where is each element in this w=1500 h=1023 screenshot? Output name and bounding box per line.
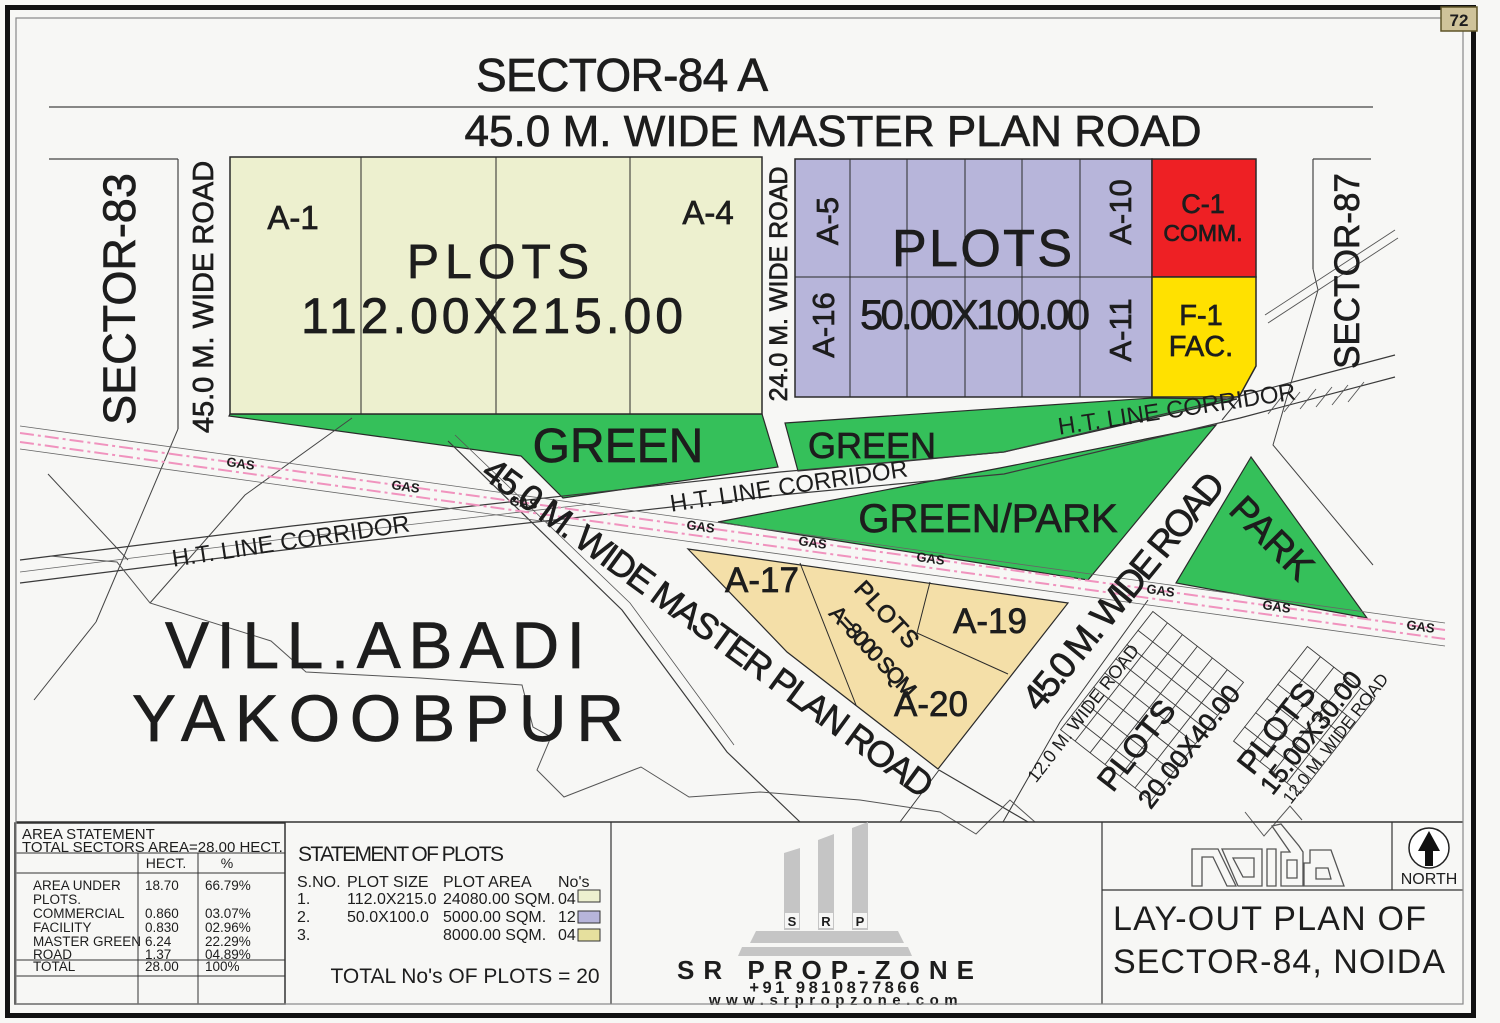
svg-text:5000.00 SQM.: 5000.00 SQM. bbox=[443, 909, 546, 926]
svg-text:GREEN/PARK: GREEN/PARK bbox=[858, 497, 1118, 541]
svg-text:A-10: A-10 bbox=[1103, 179, 1138, 244]
svg-text:18.70: 18.70 bbox=[145, 878, 179, 893]
svg-text:COMM.: COMM. bbox=[1163, 220, 1242, 246]
svg-text:24080.00 SQM.: 24080.00 SQM. bbox=[443, 891, 555, 908]
svg-text:STATEMENT OF PLOTS: STATEMENT OF PLOTS bbox=[298, 843, 504, 866]
svg-text:A-1: A-1 bbox=[267, 199, 318, 236]
svg-text:66.79%: 66.79% bbox=[205, 878, 251, 893]
svg-text:FACILITY: FACILITY bbox=[33, 920, 92, 935]
svg-text:50.0X100.0: 50.0X100.0 bbox=[347, 909, 429, 926]
svg-text:8000.00 SQM.: 8000.00 SQM. bbox=[443, 927, 546, 944]
svg-text:12: 12 bbox=[558, 909, 576, 926]
svg-text:A-17: A-17 bbox=[725, 561, 799, 600]
svg-text:2.: 2. bbox=[297, 909, 310, 926]
svg-text:SECTOR-87: SECTOR-87 bbox=[1328, 173, 1367, 369]
svg-text:A-11: A-11 bbox=[1103, 298, 1138, 361]
svg-text:28.00: 28.00 bbox=[145, 959, 179, 974]
svg-text:SECTOR-84, NOIDA: SECTOR-84, NOIDA bbox=[1113, 943, 1445, 981]
svg-text:F-1: F-1 bbox=[1179, 300, 1223, 332]
svg-text:VILL.ABADI: VILL.ABADI bbox=[165, 608, 585, 682]
svg-text:NORTH: NORTH bbox=[1401, 871, 1458, 888]
svg-text:www.srpropzone.com: www.srpropzone.com bbox=[708, 992, 963, 1009]
svg-text:45.0 M. WIDE ROAD: 45.0 M. WIDE ROAD bbox=[188, 161, 220, 433]
svg-text:%: % bbox=[221, 855, 233, 871]
svg-text:FAC.: FAC. bbox=[1169, 331, 1233, 363]
svg-text:50.00X100.00: 50.00X100.00 bbox=[860, 291, 1090, 338]
svg-text:1.: 1. bbox=[297, 891, 310, 908]
svg-text:A-5: A-5 bbox=[810, 197, 845, 245]
svg-text:100%: 100% bbox=[205, 959, 240, 974]
svg-text:S.NO.: S.NO. bbox=[297, 874, 341, 891]
svg-text:No's: No's bbox=[558, 874, 590, 891]
svg-text:PLOT SIZE: PLOT SIZE bbox=[347, 874, 429, 891]
svg-text:72: 72 bbox=[1450, 11, 1469, 30]
svg-text:P: P bbox=[856, 914, 865, 929]
svg-text:PLOTS: PLOTS bbox=[407, 236, 589, 289]
svg-text:C-1: C-1 bbox=[1181, 189, 1225, 219]
svg-text:S: S bbox=[788, 914, 797, 929]
svg-text:112.0X215.0: 112.0X215.0 bbox=[347, 891, 437, 908]
svg-text:02.96%: 02.96% bbox=[205, 920, 251, 935]
svg-text:TOTAL: TOTAL bbox=[33, 959, 76, 974]
svg-text:YAKOOBPUR: YAKOOBPUR bbox=[132, 681, 624, 755]
svg-text:03.07%: 03.07% bbox=[205, 906, 251, 921]
svg-text:A-16: A-16 bbox=[806, 292, 841, 357]
svg-text:TOTAL No's OF PLOTS = 20: TOTAL No's OF PLOTS = 20 bbox=[330, 965, 599, 988]
svg-text:SECTOR-83: SECTOR-83 bbox=[94, 173, 145, 425]
svg-text:04: 04 bbox=[558, 927, 576, 944]
svg-text:A-4: A-4 bbox=[682, 194, 733, 231]
svg-text:PLOTS: PLOTS bbox=[892, 220, 1072, 278]
svg-text:HECT.: HECT. bbox=[146, 855, 186, 871]
svg-text:A-19: A-19 bbox=[953, 602, 1027, 641]
svg-text:LAY-OUT PLAN OF: LAY-OUT PLAN OF bbox=[1113, 900, 1426, 938]
svg-text:AREA UNDER: AREA UNDER bbox=[33, 878, 121, 893]
svg-text:3.: 3. bbox=[297, 927, 310, 944]
svg-text:04: 04 bbox=[558, 891, 576, 908]
svg-text:PLOTS.: PLOTS. bbox=[33, 892, 81, 907]
svg-text:GREEN: GREEN bbox=[533, 420, 704, 473]
svg-text:PLOT AREA: PLOT AREA bbox=[443, 874, 532, 891]
svg-text:24.0 M. WIDE ROAD: 24.0 M. WIDE ROAD bbox=[765, 167, 793, 402]
svg-text:0.860: 0.860 bbox=[145, 906, 179, 921]
svg-text:SECTOR-84 A: SECTOR-84 A bbox=[476, 49, 768, 101]
svg-text:45.0 M. WIDE MASTER PLAN ROAD: 45.0 M. WIDE MASTER PLAN ROAD bbox=[465, 107, 1202, 156]
svg-text:0.830: 0.830 bbox=[145, 920, 179, 935]
svg-text:R: R bbox=[821, 914, 831, 929]
svg-text:TOTAL SECTORS AREA=28.00 HECT.: TOTAL SECTORS AREA=28.00 HECT. bbox=[22, 839, 283, 856]
svg-text:COMMERCIAL: COMMERCIAL bbox=[33, 906, 125, 921]
